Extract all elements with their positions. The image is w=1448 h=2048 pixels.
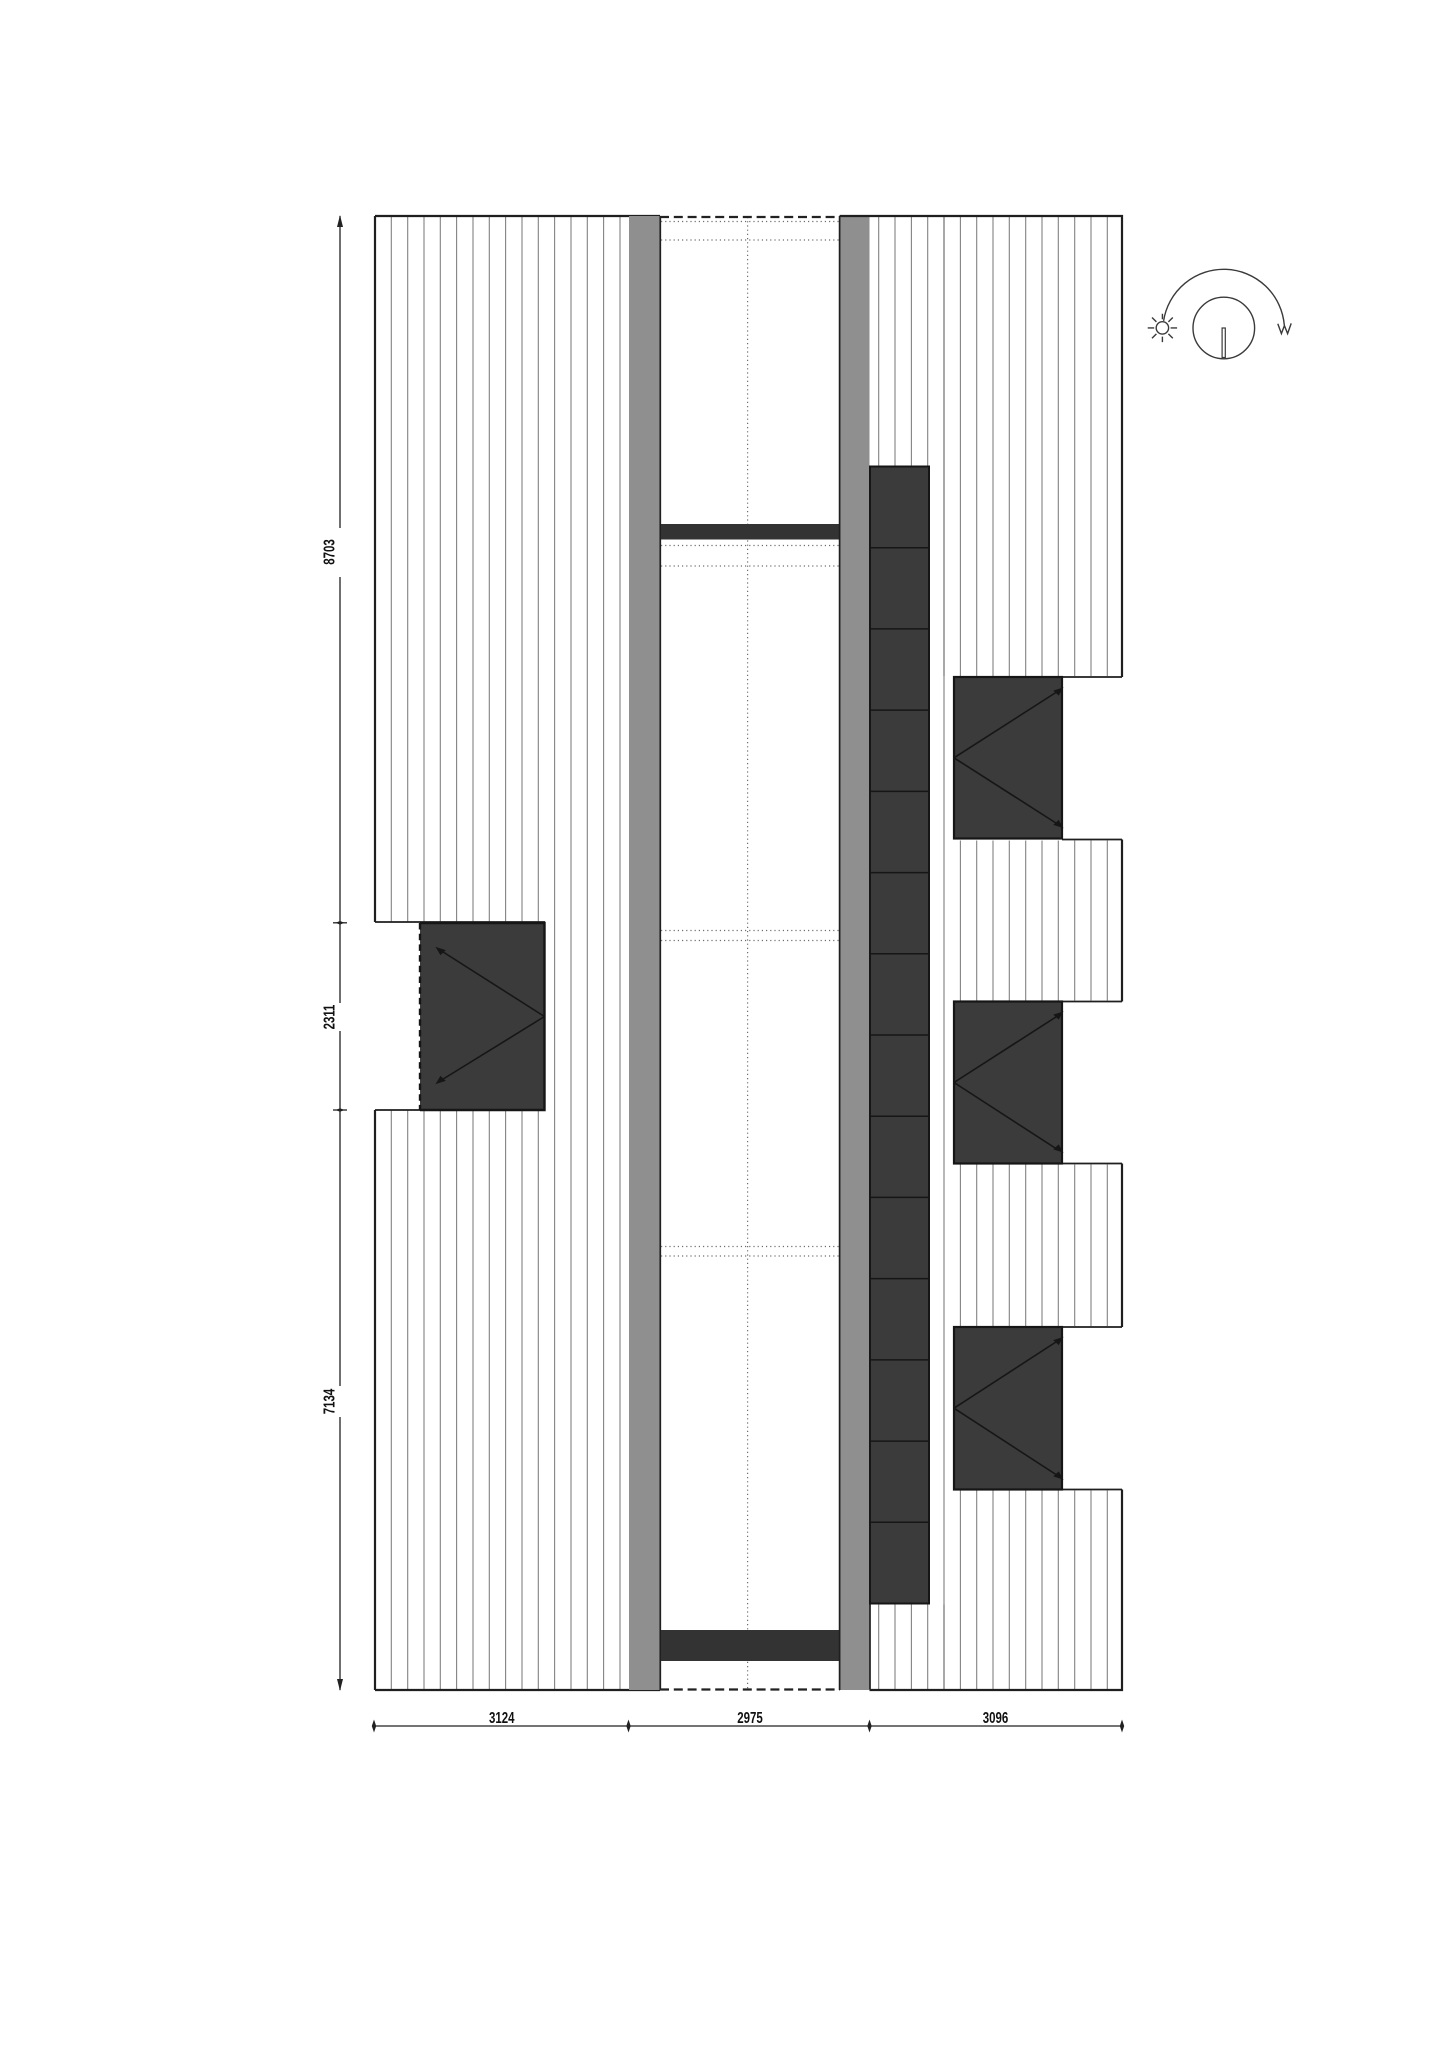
- svg-text:3124: 3124: [489, 1709, 515, 1726]
- svg-text:3096: 3096: [983, 1709, 1009, 1726]
- svg-text:8703: 8703: [321, 539, 338, 565]
- svg-text:2311: 2311: [321, 1004, 338, 1029]
- svg-text:7134: 7134: [321, 1388, 338, 1414]
- svg-text:2975: 2975: [737, 1709, 763, 1726]
